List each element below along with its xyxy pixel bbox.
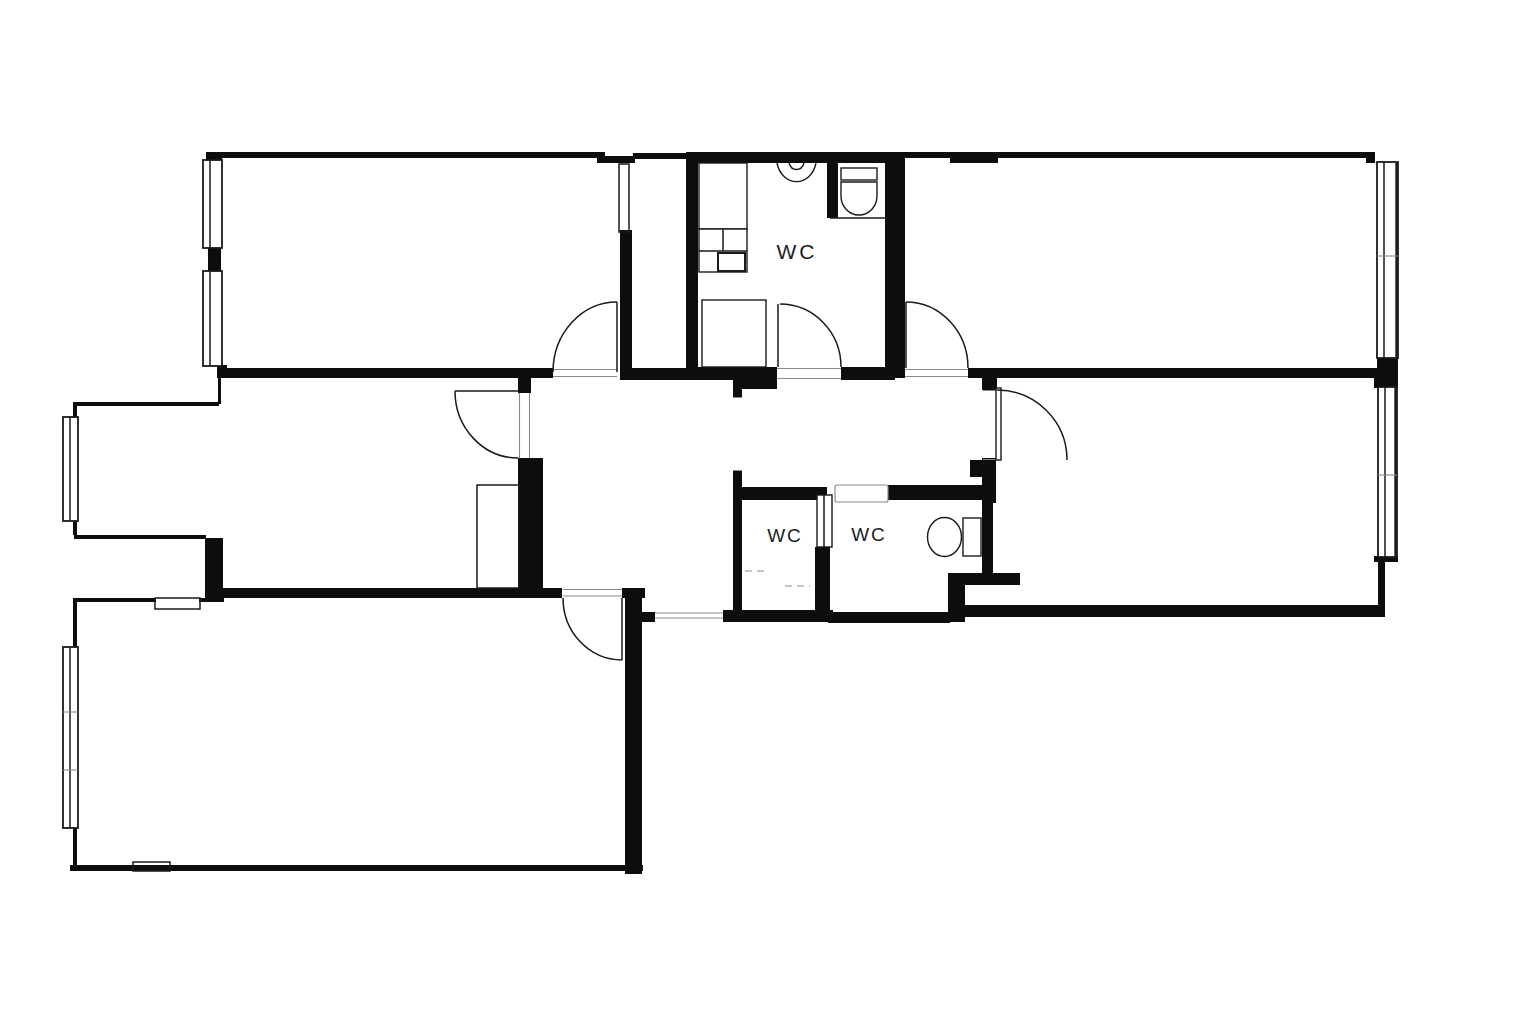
washing-machine-icon xyxy=(699,229,747,272)
wall-segment xyxy=(698,152,895,163)
wall-segment xyxy=(827,152,838,218)
wall-segment xyxy=(733,487,827,500)
wall-segment xyxy=(518,458,543,592)
door-opening xyxy=(777,369,841,379)
wall-segment xyxy=(205,538,223,598)
glazed-panel xyxy=(619,164,629,232)
wall-segment xyxy=(686,152,698,373)
wall-segment xyxy=(620,368,698,380)
wall-segment xyxy=(605,156,635,163)
facade-notch xyxy=(155,598,200,609)
door-recess xyxy=(835,485,888,502)
door-leaf-open xyxy=(817,495,832,547)
wall-segment xyxy=(1377,357,1398,378)
wall-segment xyxy=(895,152,905,378)
wall-segment xyxy=(640,612,655,622)
window xyxy=(203,160,222,248)
wc-label-mid-right: WC xyxy=(851,524,887,545)
wall-segment xyxy=(998,152,1366,158)
toilet-icon xyxy=(841,168,877,215)
wall-segment xyxy=(597,152,605,163)
window xyxy=(203,271,222,366)
wall-segment xyxy=(1366,152,1375,163)
door-opening xyxy=(553,370,617,377)
wall-segment xyxy=(218,152,597,158)
door-swing xyxy=(553,302,617,372)
wall-segment xyxy=(950,152,998,163)
wall-segment xyxy=(222,588,562,598)
cabinet xyxy=(699,163,747,229)
wall-segment xyxy=(733,378,742,397)
fixture-dashes xyxy=(745,571,810,586)
wall-segment xyxy=(217,368,553,378)
door-swing xyxy=(455,391,518,458)
wall-segment xyxy=(905,152,950,158)
wall-segment xyxy=(620,230,632,378)
window xyxy=(1377,162,1398,358)
wall-opening xyxy=(733,398,742,471)
wall-segment xyxy=(970,460,982,477)
wall-segment xyxy=(208,248,221,271)
door-swing xyxy=(906,302,968,368)
wall-segment xyxy=(948,605,1385,617)
wc-label-top: WC xyxy=(777,240,818,263)
wall-segment xyxy=(965,573,1020,585)
wall-segment xyxy=(841,367,895,380)
wall-segment xyxy=(885,152,895,378)
wardrobe xyxy=(477,485,519,588)
wc-label-mid-left: WC xyxy=(767,525,803,546)
door-swing xyxy=(563,598,622,660)
wall-segment xyxy=(75,404,219,417)
door-swing xyxy=(996,388,1067,460)
door-opening xyxy=(563,590,622,597)
wall-segment xyxy=(723,610,833,622)
wall-segment xyxy=(815,547,830,610)
door-opening xyxy=(905,370,968,377)
wall-segment xyxy=(982,493,993,578)
floor-plan: WC WC WC xyxy=(0,0,1536,1024)
wall-segment xyxy=(968,368,1377,378)
toilet-icon xyxy=(928,518,982,557)
sink-icon xyxy=(777,163,816,182)
door-opening xyxy=(983,391,996,460)
wall-segment xyxy=(1378,562,1385,610)
window xyxy=(63,417,78,521)
floor-plan-page: WC WC WC xyxy=(0,0,1536,1024)
wall-segment xyxy=(828,612,950,623)
wall-segment xyxy=(625,588,642,874)
wall-segment xyxy=(737,378,777,389)
window xyxy=(63,647,78,828)
wall-segment xyxy=(888,485,993,500)
window xyxy=(1378,387,1397,557)
door-opening xyxy=(520,393,530,458)
wall-segment xyxy=(982,378,997,390)
entry-threshold xyxy=(655,613,723,618)
shower-tray xyxy=(702,300,766,367)
door-swing xyxy=(778,304,841,367)
wall-segment xyxy=(518,378,531,393)
wall-segment xyxy=(75,600,156,647)
exterior-thin-walls xyxy=(70,368,643,871)
